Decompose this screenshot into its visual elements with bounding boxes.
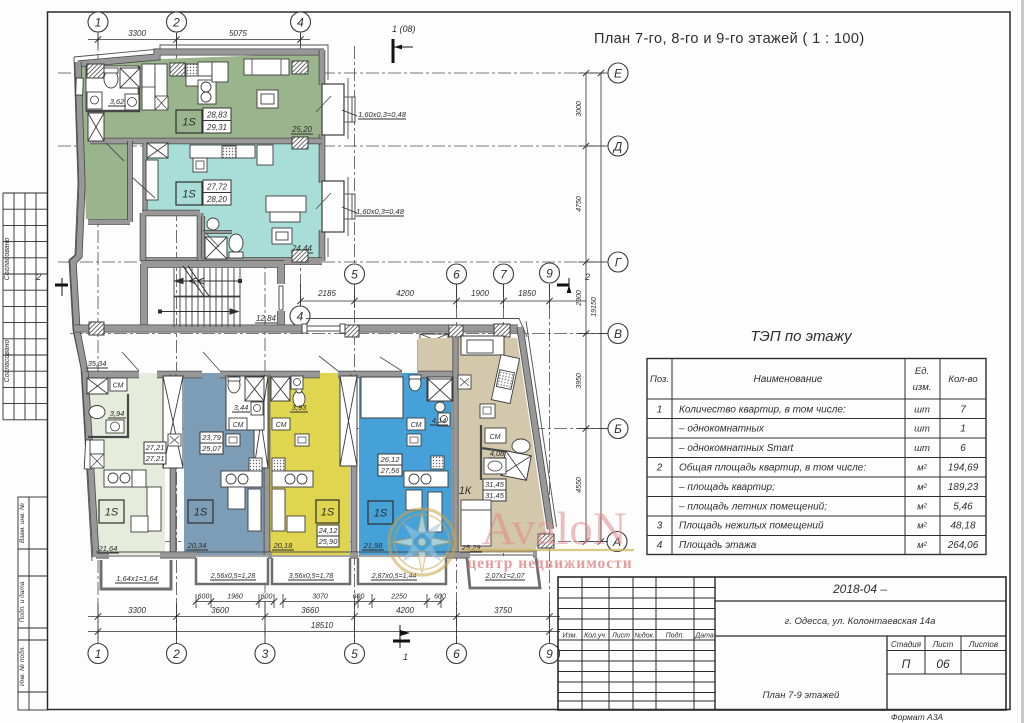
- svg-text:28,20: 28,20: [206, 195, 228, 204]
- svg-text:– площадь летних помещений;: – площадь летних помещений;: [678, 501, 827, 512]
- svg-text:Площадь нежилых помещений: Площадь нежилых помещений: [679, 521, 824, 532]
- svg-text:29,31: 29,31: [206, 123, 227, 132]
- svg-text:1: 1: [960, 424, 966, 435]
- svg-text:7: 7: [960, 404, 966, 415]
- svg-text:2: 2: [584, 272, 590, 282]
- svg-text:г. Одесса, ул. Колонтаевская 1: г. Одесса, ул. Колонтаевская 14а: [785, 616, 936, 627]
- svg-text:3600: 3600: [211, 606, 229, 615]
- svg-text:Общая площадь квартир, в том ч: Общая площадь квартир, в том числе:: [679, 462, 866, 474]
- svg-text:3070: 3070: [312, 594, 328, 601]
- svg-text:1S: 1S: [105, 506, 119, 518]
- svg-text:Кол.уч.: Кол.уч.: [584, 633, 607, 640]
- svg-text:AvaloN: AvaloN: [481, 503, 626, 555]
- svg-text:194,69: 194,69: [948, 463, 979, 474]
- svg-text:Согласовано: Согласовано: [4, 238, 11, 281]
- svg-text:3,44: 3,44: [234, 403, 249, 412]
- svg-text:600: 600: [434, 594, 446, 601]
- svg-text:600: 600: [353, 594, 365, 601]
- svg-text:СМ: СМ: [490, 434, 501, 441]
- svg-text:1К: 1К: [459, 485, 472, 497]
- svg-text:План 7-9 этажей: План 7-9 этажей: [763, 690, 840, 701]
- svg-text:4: 4: [297, 309, 304, 323]
- svg-text:2185: 2185: [317, 289, 336, 298]
- svg-text:12,84: 12,84: [256, 314, 277, 323]
- svg-text:2018-04 –: 2018-04 –: [832, 582, 887, 596]
- svg-text:3750: 3750: [494, 606, 512, 615]
- svg-text:31,45: 31,45: [485, 480, 505, 489]
- svg-text:2: 2: [172, 647, 180, 661]
- svg-text:27,21: 27,21: [145, 454, 165, 463]
- svg-text:2: 2: [172, 15, 180, 29]
- svg-text:3300: 3300: [128, 606, 146, 615]
- svg-text:шт: шт: [914, 404, 930, 415]
- svg-text:Согласовано: Согласовано: [4, 340, 11, 383]
- svg-text:Наименование: Наименование: [753, 374, 822, 385]
- svg-text:4,14: 4,14: [432, 416, 447, 425]
- svg-text:– однокомнатных: – однокомнатных: [678, 424, 765, 435]
- svg-text:25,90: 25,90: [318, 537, 339, 546]
- svg-text:П: П: [902, 657, 911, 671]
- svg-text:Д: Д: [612, 139, 623, 153]
- svg-text:1S: 1S: [182, 116, 196, 128]
- svg-text:3,56х0,5=1,78: 3,56х0,5=1,78: [289, 573, 334, 580]
- svg-text:Взам. инв. №: Взам. инв. №: [19, 503, 26, 543]
- svg-text:27,21: 27,21: [145, 443, 165, 452]
- svg-text:шт: шт: [914, 443, 930, 454]
- svg-text:Ед.: Ед.: [915, 366, 929, 377]
- svg-text:3,94: 3,94: [110, 409, 125, 418]
- svg-text:18510: 18510: [311, 621, 334, 630]
- svg-text:ТЭП по этажу: ТЭП по этажу: [750, 328, 853, 345]
- svg-text:– площадь квартир;: – площадь квартир;: [678, 482, 775, 493]
- svg-text:Б: Б: [614, 422, 622, 436]
- svg-text:3: 3: [657, 521, 663, 532]
- svg-text:48,18: 48,18: [950, 521, 975, 532]
- svg-text:28,83: 28,83: [206, 111, 228, 120]
- svg-text:20,34: 20,34: [187, 541, 207, 550]
- svg-text:№док.: №док.: [634, 632, 655, 640]
- svg-text:19150: 19150: [591, 297, 598, 317]
- svg-text:СМ: СМ: [233, 422, 244, 429]
- svg-text:5: 5: [351, 647, 358, 661]
- svg-text:2: 2: [35, 272, 41, 282]
- svg-text:центр недвижимости: центр недвижимости: [467, 555, 633, 572]
- svg-text:600: 600: [198, 594, 210, 601]
- svg-text:Дата: Дата: [694, 633, 714, 640]
- svg-text:21,98: 21,98: [363, 541, 384, 550]
- svg-text:1: 1: [95, 15, 102, 29]
- svg-text:3,62: 3,62: [110, 97, 125, 106]
- svg-text:5,46: 5,46: [953, 501, 973, 512]
- svg-text:3: 3: [262, 647, 269, 661]
- svg-text:3,93: 3,93: [292, 403, 307, 412]
- svg-text:3660: 3660: [301, 606, 319, 615]
- svg-text:5075: 5075: [229, 29, 247, 38]
- svg-text:1S: 1S: [194, 506, 208, 518]
- svg-text:СМ: СМ: [113, 383, 124, 390]
- svg-text:2250: 2250: [390, 594, 407, 601]
- svg-text:В: В: [614, 327, 622, 341]
- svg-text:3950: 3950: [576, 373, 583, 389]
- svg-text:Формат А3А: Формат А3А: [891, 712, 944, 722]
- svg-text:27,72: 27,72: [206, 183, 228, 192]
- svg-text:Количество квартир, в том числ: Количество квартир, в том числе:: [679, 404, 846, 415]
- svg-text:25,07: 25,07: [201, 444, 222, 453]
- svg-text:2,07х1=2,07: 2,07х1=2,07: [485, 573, 526, 580]
- svg-text:2,56х0,5=1,28: 2,56х0,5=1,28: [210, 573, 256, 580]
- svg-text:600: 600: [261, 594, 273, 601]
- svg-text:1: 1: [657, 404, 663, 415]
- svg-text:Подп. и дата: Подп. и дата: [18, 581, 26, 622]
- svg-text:Кол-во: Кол-во: [948, 374, 977, 385]
- svg-text:35,34: 35,34: [88, 359, 107, 368]
- svg-text:27,56: 27,56: [380, 466, 401, 475]
- svg-text:Подп.: Подп.: [666, 632, 685, 640]
- svg-text:Инв. № подл.: Инв. № подл.: [18, 646, 26, 687]
- svg-text:23,79: 23,79: [201, 433, 222, 442]
- svg-text:Лист: Лист: [611, 633, 630, 640]
- svg-text:Е: Е: [614, 66, 623, 80]
- svg-text:6: 6: [453, 647, 460, 661]
- svg-text:1S: 1S: [182, 188, 196, 200]
- svg-text:изм.: изм.: [913, 382, 932, 393]
- svg-text:25,20: 25,20: [291, 125, 313, 134]
- svg-text:4200: 4200: [396, 606, 414, 615]
- svg-text:Изм.: Изм.: [563, 633, 578, 640]
- svg-text:5: 5: [351, 267, 358, 281]
- svg-text:4: 4: [657, 540, 663, 551]
- svg-text:Стадия: Стадия: [891, 640, 922, 649]
- svg-text:1S: 1S: [321, 506, 335, 518]
- svg-text:1900: 1900: [471, 289, 489, 298]
- svg-text:Поз.: Поз.: [650, 374, 669, 385]
- svg-text:1,60х0,3=0,48: 1,60х0,3=0,48: [356, 207, 405, 216]
- svg-text:Лист: Лист: [932, 640, 954, 649]
- svg-text:4550: 4550: [576, 477, 583, 493]
- svg-text:3300: 3300: [128, 29, 146, 38]
- svg-text:4: 4: [297, 15, 304, 29]
- svg-text:– однокомнатных Smart: – однокомнатных Smart: [678, 443, 795, 454]
- svg-text:1S: 1S: [374, 507, 388, 519]
- svg-text:4200: 4200: [396, 289, 414, 298]
- svg-text:1: 1: [403, 652, 408, 662]
- svg-text:4750: 4750: [576, 196, 583, 212]
- svg-text:1: 1: [95, 647, 102, 661]
- svg-text:6: 6: [453, 267, 460, 281]
- svg-text:21,64: 21,64: [98, 544, 118, 553]
- svg-text:189,23: 189,23: [948, 482, 979, 493]
- svg-text:1,64х1=1,64: 1,64х1=1,64: [116, 574, 158, 583]
- svg-text:Площадь этажа: Площадь этажа: [679, 540, 757, 551]
- svg-text:31,45: 31,45: [485, 491, 505, 500]
- svg-text:1 (08): 1 (08): [392, 24, 416, 34]
- svg-text:3000: 3000: [576, 101, 583, 117]
- svg-text:9: 9: [546, 266, 553, 280]
- svg-text:20,18: 20,18: [273, 541, 294, 550]
- svg-text:1,60х0,3=0,48: 1,60х0,3=0,48: [358, 110, 407, 119]
- svg-text:24,12: 24,12: [318, 526, 339, 535]
- svg-text:1850: 1850: [518, 289, 536, 298]
- svg-text:План 7-го, 8-го и 9-го этажей: План 7-го, 8-го и 9-го этажей ( 1 : 100): [594, 31, 865, 47]
- svg-text:СМ: СМ: [276, 422, 287, 429]
- svg-text:2900: 2900: [576, 290, 583, 307]
- svg-text:6: 6: [960, 443, 966, 454]
- svg-text:9: 9: [546, 647, 553, 661]
- svg-text:06: 06: [936, 657, 950, 671]
- svg-text:26,12: 26,12: [380, 455, 401, 464]
- svg-text:СМ: СМ: [411, 422, 422, 429]
- svg-text:2: 2: [656, 463, 663, 474]
- svg-text:шт: шт: [914, 424, 930, 435]
- svg-text:1960: 1960: [227, 594, 243, 601]
- svg-text:Листов: Листов: [968, 640, 998, 649]
- svg-text:264,06: 264,06: [947, 540, 979, 551]
- svg-text:4,08: 4,08: [490, 449, 505, 458]
